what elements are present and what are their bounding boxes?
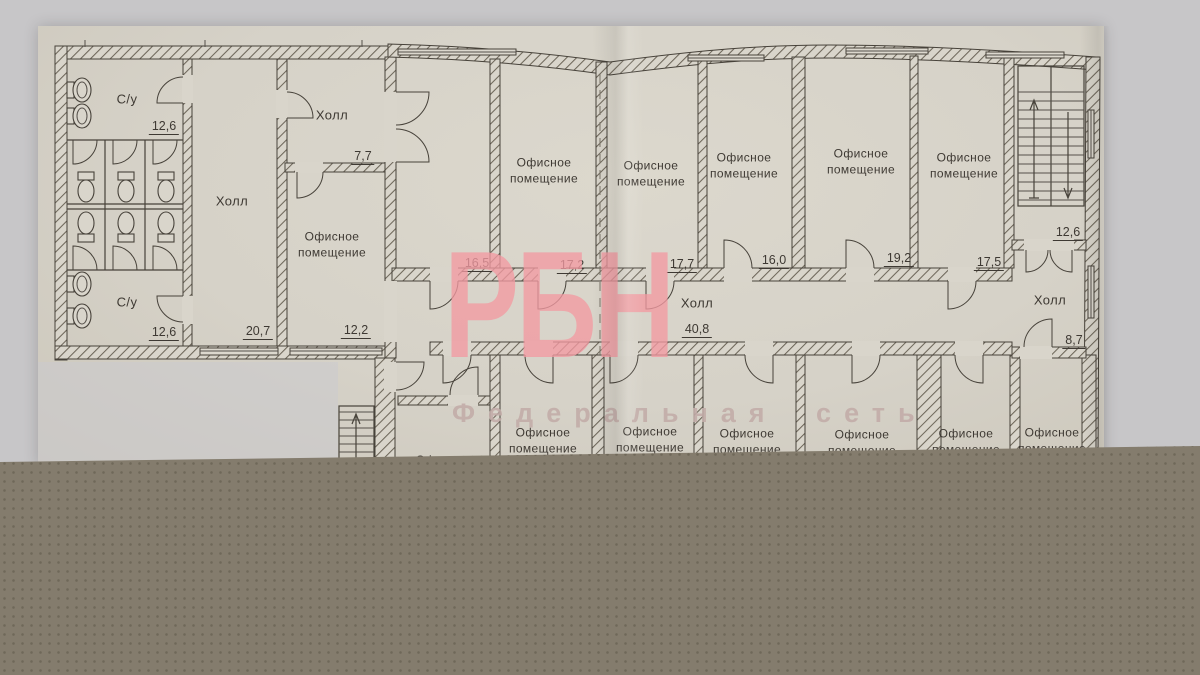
room-label-su-bottom: С/у [117, 295, 138, 312]
area-value-17-7: 17,7 [667, 257, 697, 273]
room-label-hall-right: Холл [1034, 293, 1066, 310]
door-arc [955, 355, 983, 383]
wc-stalls [67, 140, 183, 270]
area-value-stairs: 12,6 [1053, 225, 1083, 241]
door-arc [646, 281, 674, 309]
room-label-office-17-5: Офисное помещение [930, 150, 998, 181]
area-value-16-5: 16,5 [462, 256, 492, 272]
area-value-su-bottom: 12,6 [149, 325, 179, 341]
door-arc [525, 355, 553, 383]
sink-icons [67, 78, 91, 328]
area-value-16-0: 16,0 [759, 253, 789, 269]
toilet-icon [78, 212, 94, 242]
room-label-bottom-1: Офисное помещение [509, 425, 577, 456]
window [1088, 110, 1094, 158]
window [398, 49, 516, 55]
door-arc [610, 355, 638, 383]
toilet-icons [78, 172, 174, 242]
door-arc [450, 367, 478, 395]
door-arc [724, 240, 752, 268]
door-arc [1024, 319, 1052, 347]
area-value-hall-right: 8,7 [1062, 333, 1085, 349]
window [846, 48, 928, 54]
door-arc [396, 362, 424, 390]
door-arc [948, 281, 976, 309]
door-arc [157, 77, 183, 103]
area-value-17-2: 17,2 [557, 258, 587, 274]
door-arc [153, 246, 177, 270]
sink-icon [67, 272, 91, 296]
sink-icon [67, 304, 91, 328]
door-arc [113, 246, 137, 270]
toilet-icon [158, 212, 174, 242]
room-label-office-19-2: Офисное помещение [827, 146, 895, 177]
door-arc [396, 129, 429, 162]
window [688, 55, 764, 61]
window [1088, 266, 1094, 318]
room-label-office-17-7: Офисное помещение [617, 158, 685, 189]
area-value-corridor: 40,8 [682, 322, 712, 338]
door-arc [1026, 250, 1048, 272]
door-arc [1050, 250, 1072, 272]
toilet-icon [78, 172, 94, 202]
room-label-bottom-2: Офисное помещение [616, 424, 684, 455]
door-arc [113, 140, 137, 164]
stairs-icon [339, 406, 374, 463]
toilet-icon [158, 172, 174, 202]
window [986, 52, 1064, 58]
door-arc [287, 92, 313, 118]
door-arc [430, 281, 458, 309]
area-value-su-top: 12,6 [149, 119, 179, 135]
floor-plan-photo: С/у 12,6 Холл 20,7 Холл 7,7 Офисное поме… [0, 0, 1200, 675]
walls [55, 44, 1100, 463]
sink-icon [67, 78, 91, 102]
door-arc [157, 296, 183, 322]
door-arc [73, 140, 97, 164]
area-value-hall-left: 20,7 [243, 324, 273, 340]
window [200, 348, 278, 355]
door-arc [73, 246, 97, 270]
door-arc [745, 355, 773, 383]
area-value-17-5: 17,5 [974, 255, 1004, 271]
area-value-hall-small: 7,7 [351, 149, 374, 165]
toilet-icon [118, 172, 134, 202]
stairs-icon [1018, 66, 1084, 206]
window [290, 348, 382, 355]
room-label-corridor: Холл [681, 296, 713, 313]
area-value-office-12-2: 12,2 [341, 323, 371, 339]
room-label-office-17-2: Офисное помещение [510, 155, 578, 186]
room-label-office-16-0: Офисное помещение [710, 150, 778, 181]
door-arc [396, 92, 429, 125]
room-label-hall-small: Холл [316, 108, 348, 125]
room-label-hall-left: Холл [216, 194, 248, 211]
door-arc [153, 140, 177, 164]
sink-icon [67, 104, 91, 128]
area-value-19-2: 19,2 [884, 251, 914, 267]
room-label-su-top: С/у [117, 92, 138, 109]
door-arc [297, 172, 323, 198]
room-label-office-12-2: Офисное помещение [298, 229, 366, 260]
door-arc [846, 240, 874, 268]
door-arc [852, 355, 880, 383]
door-arc [538, 281, 566, 309]
toilet-icon [118, 212, 134, 242]
